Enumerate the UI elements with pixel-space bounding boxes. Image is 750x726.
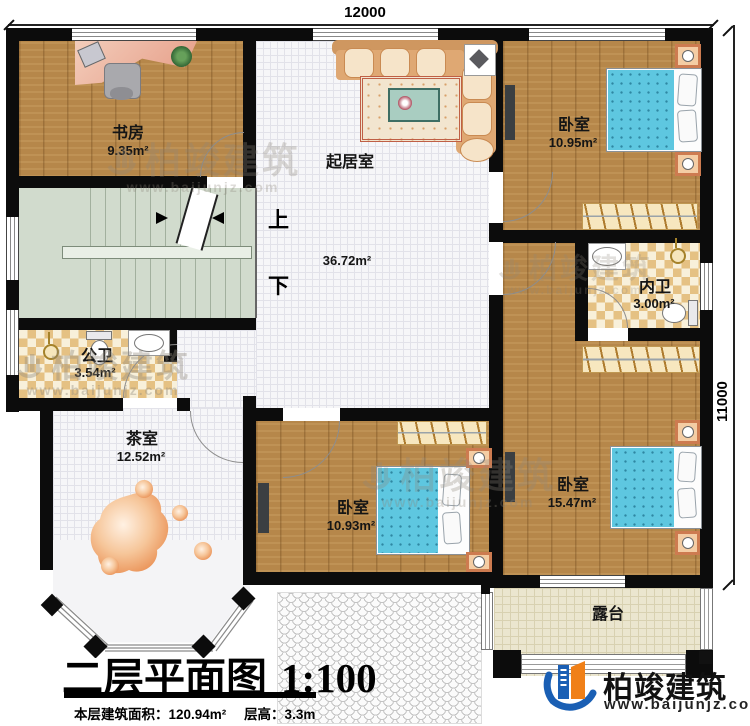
wall — [243, 408, 283, 421]
sink-icon — [592, 247, 622, 266]
sofa-cushion — [416, 48, 446, 78]
room-label-inner-bath: 内卫 — [639, 280, 671, 296]
pillow — [442, 473, 462, 506]
wall — [575, 243, 588, 341]
wardrobe — [582, 203, 698, 230]
sofa-cushion — [344, 48, 374, 78]
stair-edge — [255, 188, 257, 318]
sliding-door — [540, 575, 625, 588]
wall — [19, 318, 256, 330]
stair-arrow — [212, 212, 224, 224]
room-area-public-bath: 3.54m² — [74, 366, 115, 379]
wall — [19, 176, 207, 188]
room-area-inner-bath: 3.00m² — [633, 297, 674, 310]
tv — [505, 85, 515, 140]
floor-plan: 上 下 — [0, 0, 750, 726]
nightstand — [675, 44, 701, 68]
pillow — [677, 109, 698, 142]
terrace-railing — [700, 588, 713, 650]
room-label-tea-room: 茶室 — [126, 432, 158, 448]
title-underline — [64, 692, 316, 698]
toilet-icon — [688, 300, 698, 326]
stair-arrow — [156, 212, 168, 224]
window — [6, 217, 19, 280]
dimension-line — [8, 24, 714, 26]
shower-hose — [48, 332, 50, 344]
plan-info: 本层建筑面积：120.94m² 层高：3.3m — [74, 703, 315, 723]
room-area-living: 36.72m² — [323, 254, 371, 267]
wall — [481, 575, 490, 594]
room-label-public-bath: 公卫 — [81, 349, 113, 365]
wall — [243, 572, 489, 585]
nightstand — [675, 152, 701, 176]
nightstand — [466, 448, 492, 468]
wardrobe — [397, 421, 487, 445]
shower-icon — [43, 344, 59, 360]
room-label-bedroom-top: 卧室 — [558, 118, 590, 134]
plan-info-area: 本层建筑面积：120.94m² — [74, 707, 226, 722]
terrace-post — [493, 650, 521, 678]
shower-icon — [670, 248, 686, 264]
bed-mattress — [608, 70, 674, 150]
stair-up-label: 上 — [268, 210, 289, 231]
brand-logo-icon — [541, 655, 597, 715]
plant-icon — [171, 46, 192, 67]
room-label-living: 起居室 — [326, 155, 374, 171]
plan-info-height: 层高：3.3m — [244, 707, 315, 722]
window — [72, 28, 196, 41]
window — [529, 28, 665, 41]
tv — [505, 452, 515, 502]
toilet-icon — [86, 331, 112, 340]
tea-room-rug — [85, 462, 225, 582]
wall — [40, 398, 53, 570]
wall — [243, 28, 256, 188]
lamp-icon — [682, 158, 694, 170]
lamp-icon — [682, 537, 694, 549]
stair-divider — [62, 246, 252, 259]
room-label-study: 书房 — [112, 126, 144, 142]
bed-mattress — [378, 468, 438, 553]
nightstand — [675, 531, 700, 555]
wardrobe — [582, 346, 700, 373]
wall — [340, 408, 489, 421]
wall — [6, 398, 123, 411]
sofa-cushion — [462, 102, 492, 136]
nightstand — [675, 420, 700, 444]
wall — [625, 575, 713, 588]
shower-hose — [675, 238, 677, 248]
window — [6, 310, 19, 375]
wall — [6, 28, 19, 217]
wall — [177, 398, 190, 411]
room-label-bedroom-mid: 卧室 — [337, 501, 369, 517]
sofa-ottoman — [460, 138, 494, 162]
pillow — [677, 451, 697, 482]
lamp-icon — [682, 426, 694, 438]
wall — [243, 421, 256, 585]
wall — [489, 575, 540, 588]
lamp-icon — [682, 50, 694, 62]
room-area-bedroom-top: 10.95m² — [549, 136, 597, 149]
dimension-right: 11000 — [714, 352, 731, 422]
room-area-bedroom-right: 15.47m² — [548, 496, 596, 509]
stair-down-label: 下 — [268, 276, 289, 297]
coffee-table — [388, 88, 440, 122]
lamp-icon — [473, 556, 485, 568]
pillow — [677, 73, 698, 106]
room-area-study: 9.35m² — [107, 144, 148, 157]
tv — [258, 483, 269, 533]
dimension-top: 12000 — [300, 4, 430, 21]
nightstand — [466, 552, 492, 572]
sink-icon — [134, 334, 164, 352]
dimension-tick — [722, 25, 733, 36]
room-area-bedroom-mid: 10.93m² — [327, 519, 375, 532]
wall — [243, 396, 256, 408]
room-label-terrace: 露台 — [592, 607, 624, 623]
dimension-line — [733, 25, 735, 585]
pillow — [677, 487, 697, 518]
wall — [628, 328, 700, 341]
office-chair-seat — [110, 87, 133, 100]
lamp-icon — [473, 452, 485, 464]
dimension-tick — [722, 579, 733, 590]
wall — [6, 280, 19, 310]
window — [700, 263, 713, 310]
room-area-tea-room: 12.52m² — [117, 450, 165, 463]
brand-url: www.baijunjz.com — [604, 696, 750, 713]
wall — [489, 295, 503, 585]
wall — [575, 328, 588, 341]
pillow — [442, 511, 462, 544]
terrace-railing — [481, 592, 493, 650]
flower-deco-icon — [398, 96, 412, 110]
wall — [489, 223, 503, 242]
room-label-bedroom-right: 卧室 — [557, 478, 589, 494]
bed-mattress — [612, 448, 674, 527]
sofa-cushion — [380, 48, 410, 78]
